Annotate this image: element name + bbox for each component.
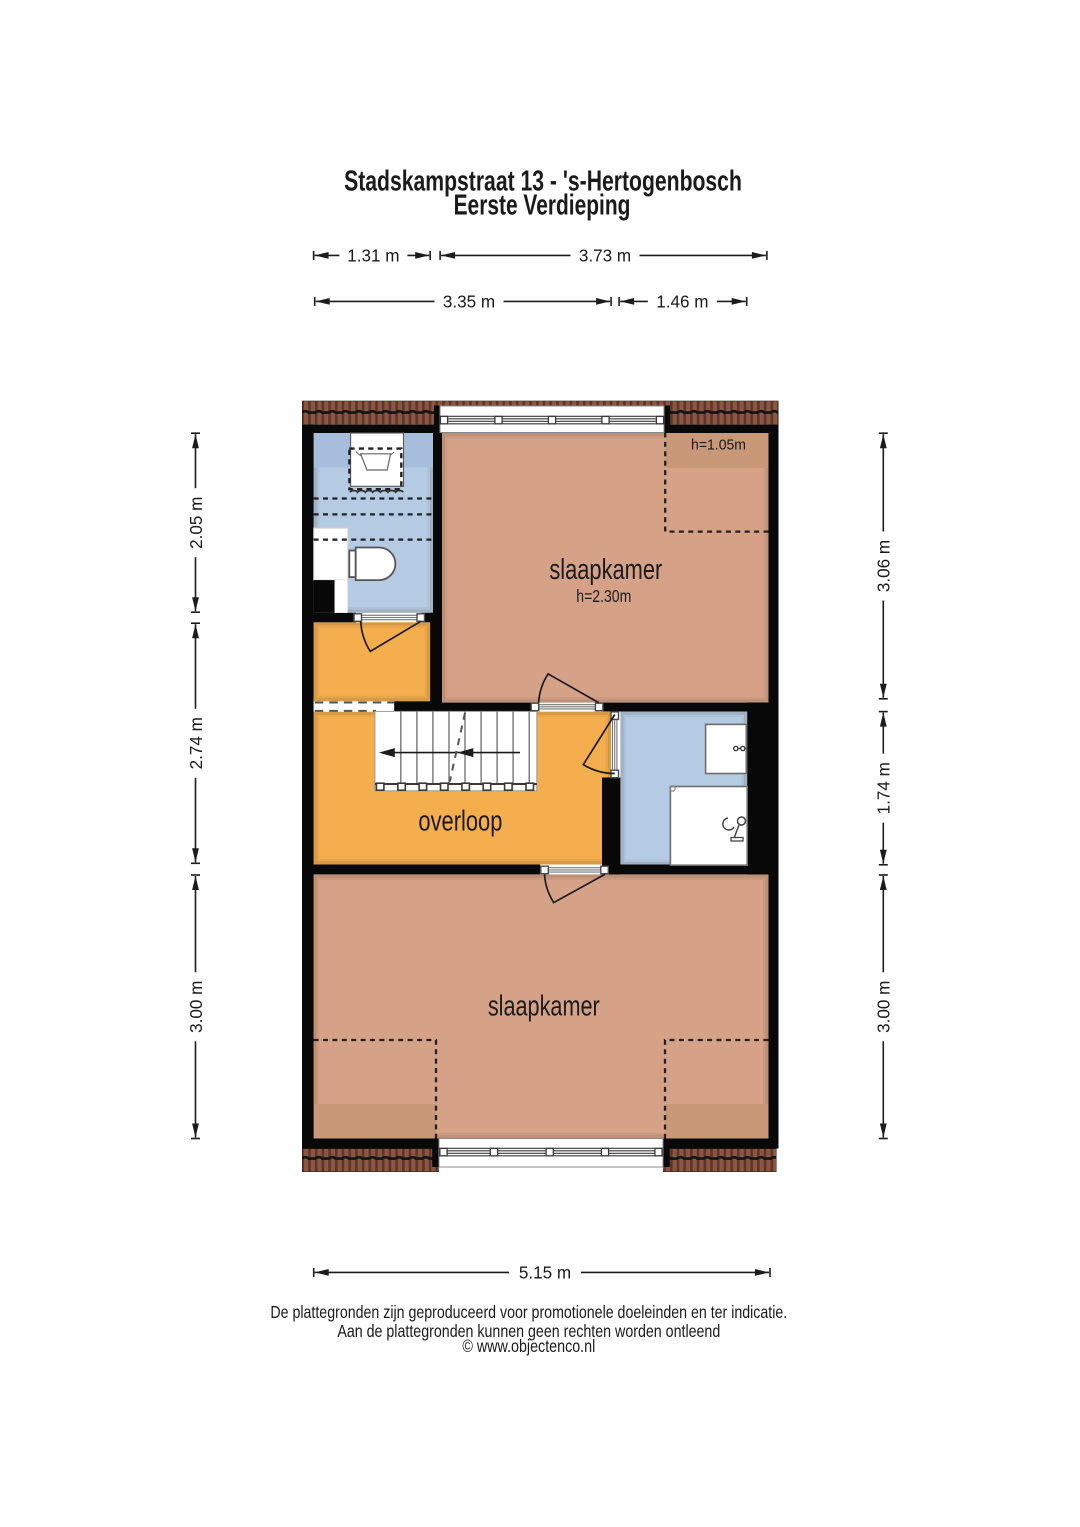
svg-text:2.05 m: 2.05 m [185, 497, 206, 549]
svg-text:h=1.05m: h=1.05m [691, 437, 746, 454]
svg-text:3.35 m: 3.35 m [443, 291, 495, 312]
svg-text:overloop: overloop [418, 805, 502, 837]
svg-text:slaapkamer: slaapkamer [549, 554, 662, 586]
svg-text:De plattegronden zijn geproduc: De plattegronden zijn geproduceerd voor … [270, 1302, 787, 1322]
svg-text:3.00 m: 3.00 m [185, 981, 206, 1033]
svg-text:1.74 m: 1.74 m [873, 762, 894, 814]
svg-text:5.15 m: 5.15 m [519, 1262, 571, 1283]
svg-text:2.74 m: 2.74 m [185, 717, 206, 769]
svg-text:3.00 m: 3.00 m [873, 981, 894, 1033]
svg-text:Eerste Verdieping: Eerste Verdieping [454, 189, 631, 221]
svg-text:3.73 m: 3.73 m [579, 245, 631, 266]
svg-text:slaapkamer: slaapkamer [488, 990, 600, 1022]
svg-text:h=2.30m: h=2.30m [576, 588, 631, 607]
svg-text:© www.objectenco.nl: © www.objectenco.nl [462, 1337, 595, 1357]
svg-text:1.31 m: 1.31 m [347, 245, 399, 266]
svg-text:1.46 m: 1.46 m [656, 291, 708, 312]
svg-text:3.06 m: 3.06 m [873, 540, 894, 592]
